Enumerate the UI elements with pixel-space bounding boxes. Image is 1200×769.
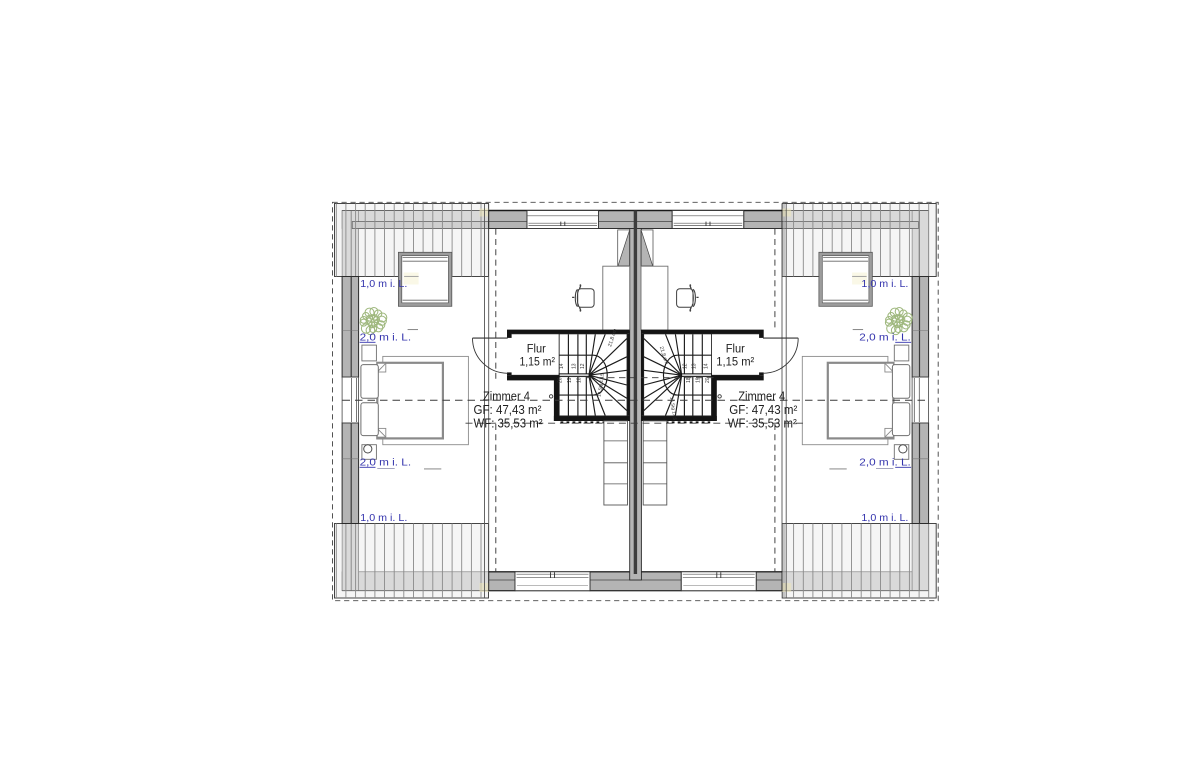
svg-text:2,0 m i. L.: 2,0 m i. L. bbox=[360, 457, 412, 468]
svg-text:12: 12 bbox=[580, 363, 586, 369]
svg-text:13: 13 bbox=[691, 363, 697, 369]
svg-text:18: 18 bbox=[577, 377, 583, 383]
svg-text:2,0 m i. L.: 2,0 m i. L. bbox=[859, 333, 911, 344]
svg-text:1,15 m²: 1,15 m² bbox=[716, 355, 754, 369]
svg-text:Flur: Flur bbox=[527, 342, 546, 356]
svg-text:1,0 m i. L.: 1,0 m i. L. bbox=[360, 513, 407, 524]
svg-text:2,0 m i. L.: 2,0 m i. L. bbox=[360, 333, 412, 344]
svg-text:14: 14 bbox=[559, 363, 565, 369]
svg-text:Zimmer 4: Zimmer 4 bbox=[483, 390, 530, 404]
svg-text:13: 13 bbox=[571, 363, 577, 369]
svg-text:Flur: Flur bbox=[726, 342, 745, 356]
svg-text:19: 19 bbox=[567, 377, 573, 383]
svg-text:12: 12 bbox=[683, 363, 689, 369]
svg-text:GF: 47,43 m²: GF: 47,43 m² bbox=[474, 403, 542, 417]
svg-text:GF: 47,43 m²: GF: 47,43 m² bbox=[729, 403, 797, 417]
svg-text:20: 20 bbox=[558, 377, 564, 383]
svg-text:1,0 m i. L.: 1,0 m i. L. bbox=[861, 279, 908, 290]
svg-text:1,15 m²: 1,15 m² bbox=[519, 355, 555, 369]
svg-text:1,0 m i. L.: 1,0 m i. L. bbox=[861, 513, 908, 524]
svg-text:WF: 35,53 m²: WF: 35,53 m² bbox=[474, 416, 543, 430]
svg-text:2,0 m i. L.: 2,0 m i. L. bbox=[859, 457, 911, 468]
svg-text:1,0 m i. L.: 1,0 m i. L. bbox=[360, 279, 407, 290]
svg-text:14: 14 bbox=[704, 363, 710, 369]
svg-text:Zimmer 4: Zimmer 4 bbox=[738, 390, 785, 404]
svg-text:WF: 35,53 m²: WF: 35,53 m² bbox=[728, 416, 797, 430]
